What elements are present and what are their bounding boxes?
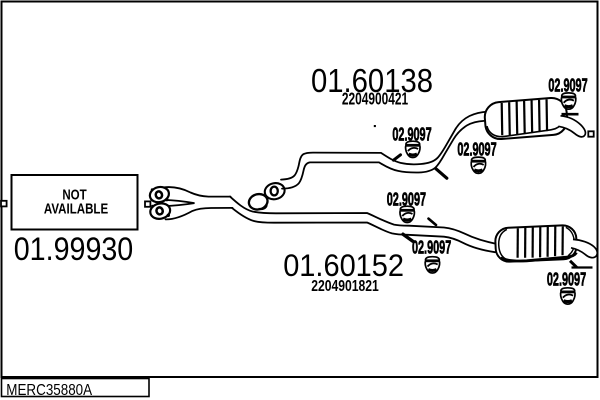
svg-text:2204901821: 2204901821 [311, 276, 379, 294]
svg-text:AVAILABLE: AVAILABLE [44, 200, 108, 217]
svg-text:MERC35880A: MERC35880A [6, 382, 92, 399]
svg-text:02.9097: 02.9097 [412, 238, 451, 259]
svg-text:01.99930: 01.99930 [14, 231, 133, 267]
svg-text:2204900421: 2204900421 [342, 89, 408, 109]
